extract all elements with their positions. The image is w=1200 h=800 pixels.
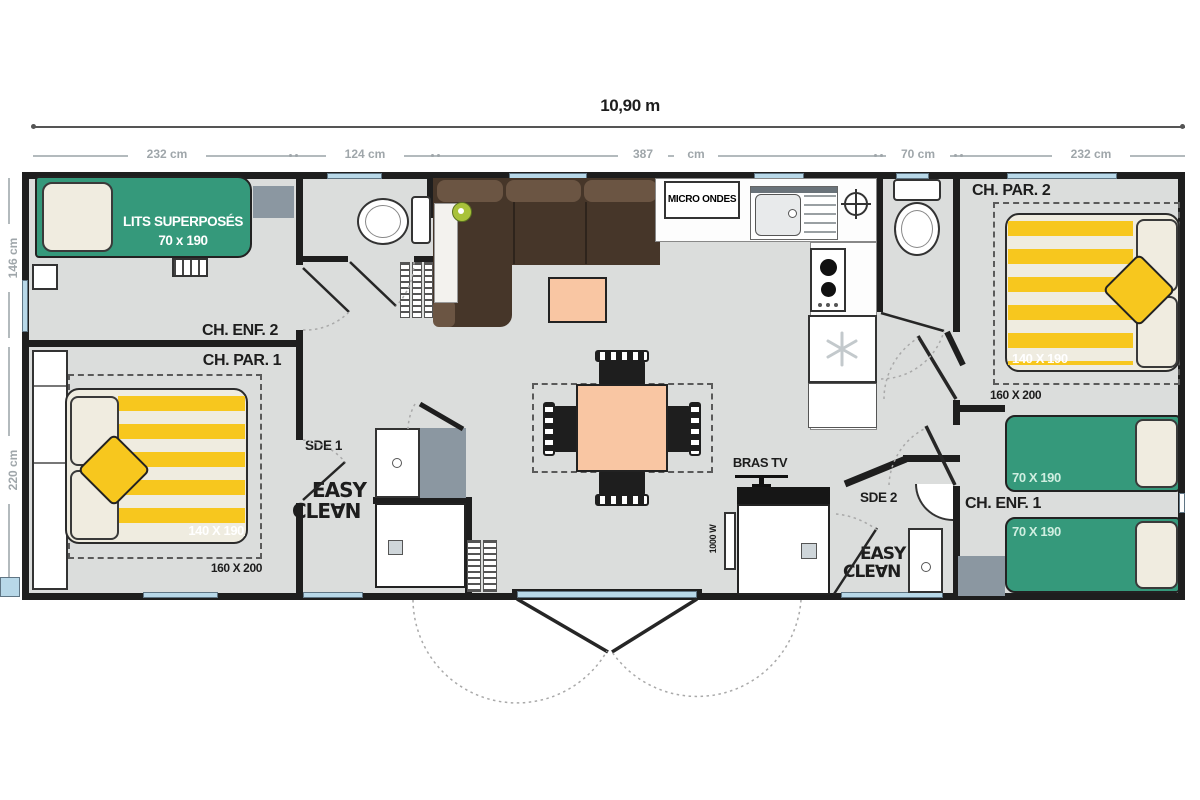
door-swings-overlay xyxy=(0,0,1200,800)
door-leaf xyxy=(350,262,396,306)
angled-wall xyxy=(420,404,463,429)
door-swing-arc xyxy=(303,440,345,462)
door-swing-arc xyxy=(889,428,926,485)
door-swing-arc xyxy=(303,312,349,330)
door-leaf xyxy=(834,528,877,594)
floor-plan-canvas: 10,90 m 232 cm 124 cm 387 cm 70 cm 232 c… xyxy=(0,0,1200,800)
french-door-swing-arc xyxy=(413,600,607,703)
door-swing-arc xyxy=(396,262,414,306)
angled-wall xyxy=(947,332,963,365)
ceiling-light-cross xyxy=(841,189,871,219)
door-leaf xyxy=(881,313,944,331)
door-leaf xyxy=(303,268,349,312)
door-swing-arc xyxy=(884,338,918,399)
door-leaf xyxy=(926,426,955,485)
door-swing-arc xyxy=(408,404,415,429)
french-door-leaf xyxy=(517,599,608,652)
french-door-swing-arc xyxy=(612,600,801,696)
angled-wall xyxy=(845,459,906,484)
door-leaf xyxy=(303,462,345,500)
door-swing-arc xyxy=(881,331,944,379)
door-swing-arc xyxy=(836,514,877,530)
french-door-leaf xyxy=(612,599,697,652)
